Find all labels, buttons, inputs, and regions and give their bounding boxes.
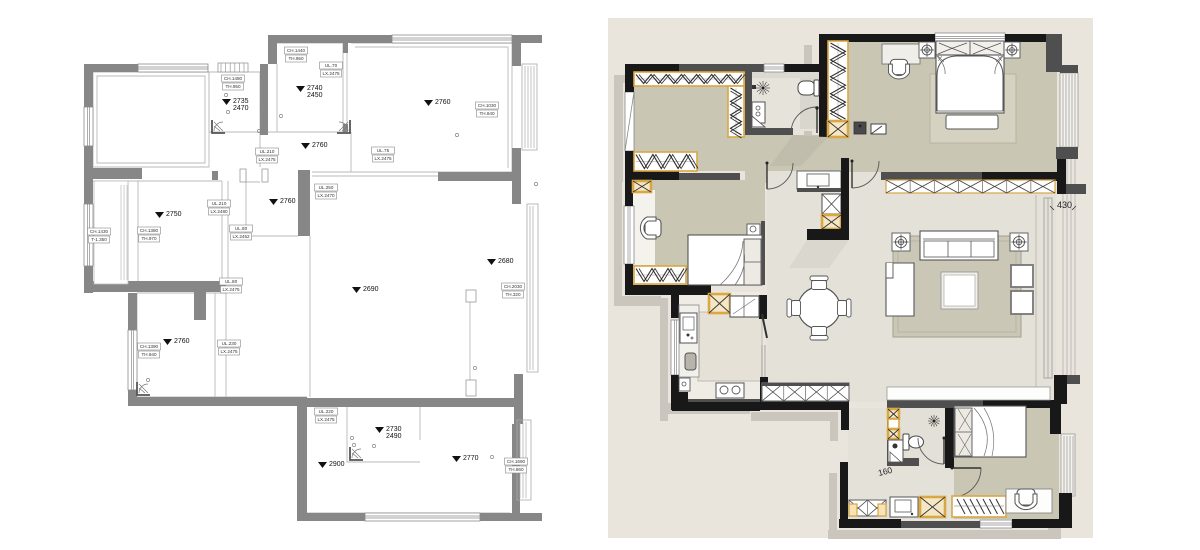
svg-text:2470: 2470 <box>233 105 249 112</box>
svg-text:2730: 2730 <box>386 426 402 433</box>
svg-text:2760: 2760 <box>174 338 190 345</box>
svg-text:CH.1390: CH.1390 <box>140 344 159 349</box>
svg-text:CH.1690: CH.1690 <box>507 459 526 464</box>
svg-text:CH.1430: CH.1430 <box>90 229 109 234</box>
svg-text:UL.210: UL.210 <box>260 149 275 154</box>
svg-text:CH.1440: CH.1440 <box>287 48 306 53</box>
svg-text:430: 430 <box>1057 200 1072 210</box>
svg-text:LX.2475: LX.2475 <box>222 287 240 292</box>
svg-text:2740: 2740 <box>307 85 323 92</box>
svg-text:UL.250: UL.250 <box>319 185 334 190</box>
svg-text:2690: 2690 <box>363 286 379 293</box>
svg-text:2770: 2770 <box>463 455 479 462</box>
svg-text:2450: 2450 <box>307 92 323 99</box>
svg-text:UL.210: UL.210 <box>212 201 227 206</box>
svg-text:2750: 2750 <box>166 211 182 218</box>
svg-text:UL.80: UL.80 <box>225 279 238 284</box>
svg-text:CH.2030: CH.2030 <box>504 284 523 289</box>
svg-text:UL.230: UL.230 <box>222 341 237 346</box>
svg-text:TH.950: TH.950 <box>288 56 304 61</box>
svg-text:UL.75: UL.75 <box>377 148 390 153</box>
svg-text:LX.2475: LX.2475 <box>322 71 340 76</box>
svg-text:UL.70: UL.70 <box>325 63 338 68</box>
svg-text:CH.1030: CH.1030 <box>478 103 497 108</box>
svg-text:TH.320: TH.320 <box>505 292 521 297</box>
svg-text:LX.2475: LX.2475 <box>317 417 335 422</box>
svg-text:TH.940: TH.940 <box>141 352 157 357</box>
svg-text:T-1.350: T-1.350 <box>91 237 107 242</box>
svg-text:CH.1480: CH.1480 <box>224 76 243 81</box>
svg-text:LX.2480: LX.2480 <box>210 209 228 214</box>
svg-text:LX.2452: LX.2452 <box>232 234 250 239</box>
svg-text:2735: 2735 <box>233 98 249 105</box>
svg-text:TH.860: TH.860 <box>508 467 524 472</box>
svg-text:UL.80: UL.80 <box>235 226 248 231</box>
svg-text:CH.1380: CH.1380 <box>140 228 159 233</box>
svg-text:LX.2475: LX.2475 <box>258 157 276 162</box>
svg-text:2680: 2680 <box>498 258 514 265</box>
svg-text:UL.220: UL.220 <box>319 409 334 414</box>
svg-text:LX.2475: LX.2475 <box>374 156 392 161</box>
svg-text:LX.2470: LX.2470 <box>317 193 335 198</box>
svg-text:2760: 2760 <box>312 142 328 149</box>
svg-text:LX.2475: LX.2475 <box>220 349 238 354</box>
svg-text:TH.840: TH.840 <box>479 111 495 116</box>
svg-text:2760: 2760 <box>280 198 296 205</box>
svg-text:2900: 2900 <box>329 461 345 468</box>
svg-text:TH.950: TH.950 <box>225 84 241 89</box>
svg-text:TH.970: TH.970 <box>141 236 157 241</box>
svg-text:2490: 2490 <box>386 433 402 440</box>
svg-text:2760: 2760 <box>435 99 451 106</box>
